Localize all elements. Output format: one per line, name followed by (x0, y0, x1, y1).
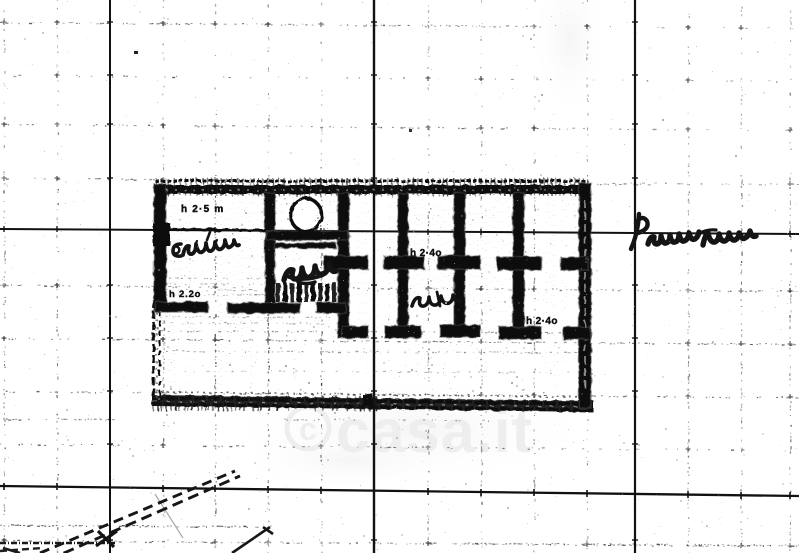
svg-text:c: c (299, 411, 317, 447)
svg-text:h 2·4o: h 2·4o (526, 316, 558, 327)
svg-text:h 2.2o: h 2.2o (169, 289, 201, 300)
svg-text:h 2·5 m: h 2·5 m (181, 204, 224, 215)
